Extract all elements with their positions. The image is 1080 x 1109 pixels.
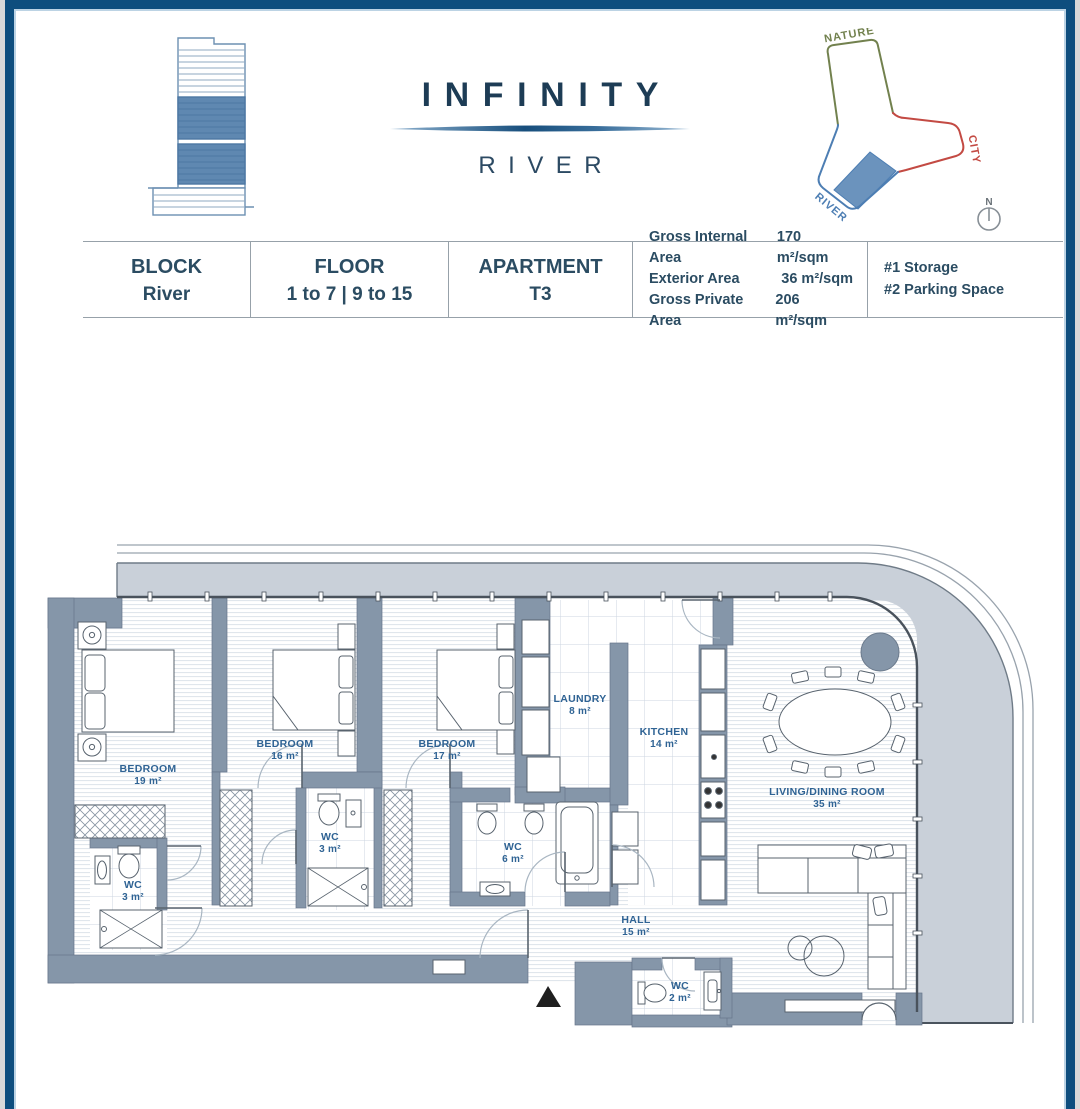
wardrobe [220,790,252,906]
floorplan-sheet: INFINITY RIVER NATURE CITY RIVER N BLOC [0,0,1080,1109]
room-label-wc-middle: WC3 m² [319,831,341,857]
block-column: BLOCK River [83,242,250,317]
room-label-wc-left: WC3 m² [122,879,144,905]
room-label-bedroom-1: BEDROOM19 m² [120,763,177,789]
extras-column: #1 Storage #2 Parking Space [867,242,1063,317]
block-value: River [143,282,191,308]
brand-title: INFINITY [330,76,750,115]
room-label-hall: HALL15 m² [621,914,650,940]
area-label: Exterior Area [649,269,740,290]
threshold [433,960,465,974]
room-label-living: LIVING/DINING ROOM35 m² [769,786,885,812]
border-inner-top [14,9,1066,11]
structural-column [861,633,899,671]
compass-north-label: N [985,197,992,208]
area-row: Gross Private Area 206 m²/sqm [649,290,853,332]
tower-illustration [148,36,256,218]
area-row: Gross Internal Area 170 m²/sqm [649,227,853,269]
block-label: BLOCK [131,252,202,282]
kitchen-appliances [701,649,725,900]
area-value: 170 m²/sqm [777,227,853,269]
area-label: Gross Internal Area [649,227,777,269]
wardrobe [384,790,412,906]
apartment-label: APARTMENT [478,252,602,282]
room-label-bedroom-3: BEDROOM17 m² [419,738,476,764]
floor-value: 1 to 7 | 9 to 15 [287,282,413,308]
room-label-wc-6: WC6 m² [502,841,524,867]
border-top [5,0,1075,9]
cabinet [612,812,638,846]
brand-swoosh [390,122,690,136]
area-label: Gross Private Area [649,290,775,332]
floor-plan [0,530,1080,1050]
floor-column: FLOOR 1 to 7 | 9 to 15 [250,242,448,317]
area-value: 206 m²/sqm [775,290,853,332]
extra-row: #1 Storage [884,258,1063,279]
nature-edge [828,40,893,125]
brand-subtitle: RIVER [330,152,750,180]
site-diagram: NATURE CITY RIVER N [805,28,1005,238]
area-value: 36 m²/sqm [781,269,853,290]
city-edge [893,113,963,172]
room-label-bedroom-2: BEDROOM16 m² [257,738,314,764]
wardrobe [75,805,165,838]
room-label-wc-entry: WC2 m² [669,980,691,1006]
room-label-laundry: LAUNDRY8 m² [553,693,606,719]
areas-column: Gross Internal Area 170 m²/sqm Exterior … [632,242,867,317]
apartment-value: T3 [529,282,551,308]
compass: N [978,197,1000,230]
extra-row: #2 Parking Space [884,280,1063,301]
floor-label: FLOOR [315,252,385,282]
city-label: CITY [966,134,983,165]
cabinet [612,850,638,884]
room-label-kitchen: KITCHEN14 m² [640,726,689,752]
area-row: Exterior Area 36 m²/sqm [649,269,853,290]
apartment-column: APARTMENT T3 [448,242,632,317]
info-table: BLOCK River FLOOR 1 to 7 | 9 to 15 APART… [83,241,1063,318]
